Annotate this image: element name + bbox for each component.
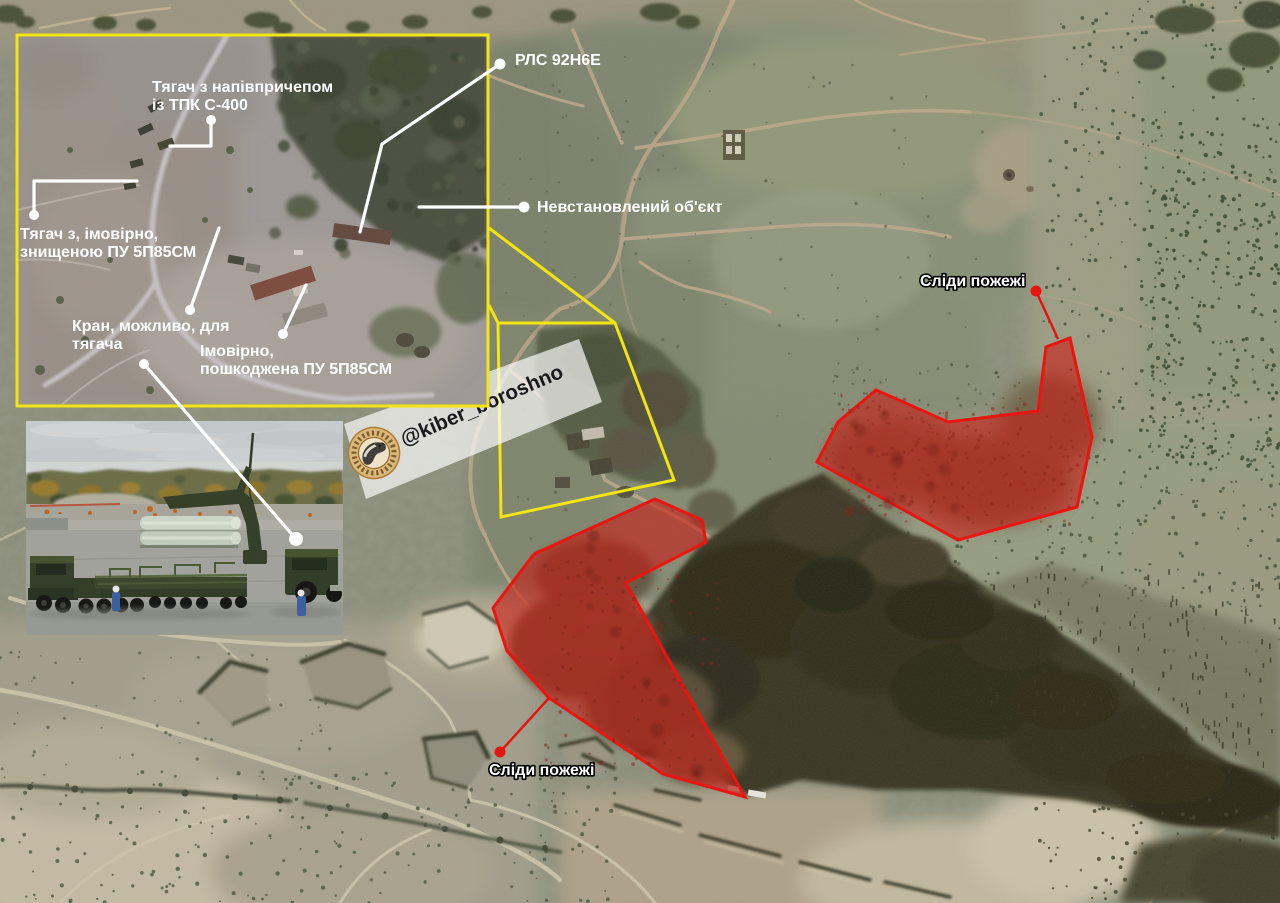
- svg-text:із ТПК С-400: із ТПК С-400: [152, 97, 248, 114]
- svg-text:тягача: тягача: [72, 336, 123, 353]
- svg-text:Тягач з напівпричепом: Тягач з напівпричепом: [152, 79, 333, 96]
- svg-text:Тягач з, імовірно,: Тягач з, імовірно,: [20, 226, 158, 243]
- svg-text:РЛС 92Н6Е: РЛС 92Н6Е: [515, 52, 601, 69]
- svg-text:пошкоджена ПУ 5П85СМ: пошкоджена ПУ 5П85СМ: [200, 361, 392, 378]
- svg-text:знищеною ПУ 5П85СМ: знищеною ПУ 5П85СМ: [20, 244, 196, 261]
- svg-text:Невстановлений об'єкт: Невстановлений об'єкт: [537, 199, 723, 216]
- svg-text:Кран, можливо, для: Кран, можливо, для: [72, 318, 229, 335]
- svg-text:Імовірно,: Імовірно,: [200, 343, 274, 360]
- svg-text:Сліди пожежі: Сліди пожежі: [489, 762, 594, 779]
- svg-text:Сліди пожежі: Сліди пожежі: [920, 273, 1025, 290]
